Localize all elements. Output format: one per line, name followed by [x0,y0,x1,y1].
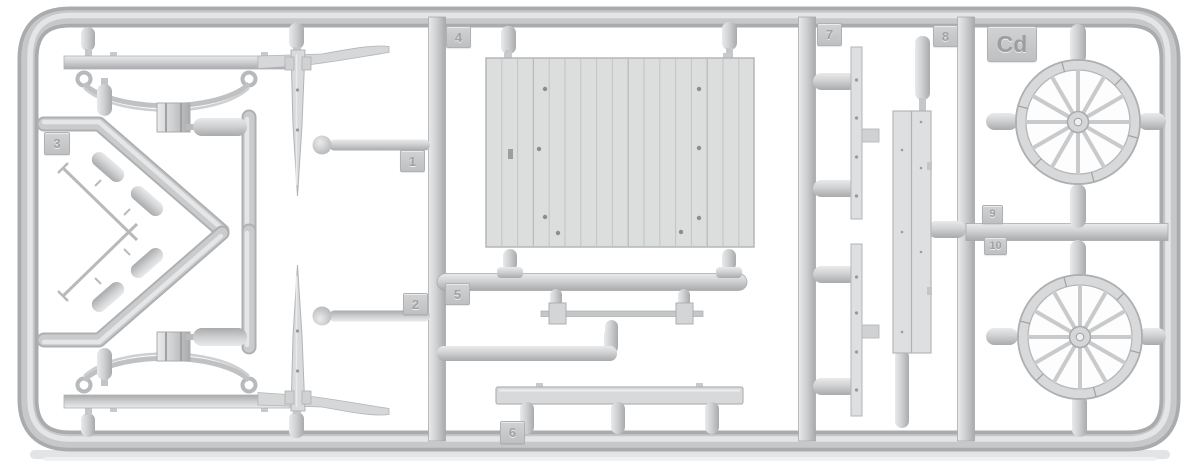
sprue-photo: 3 1 2 4 5 6 7 8 9 10 Cd [0,0,1200,465]
rail-2 [799,17,816,441]
tie-rod-part [541,289,703,324]
axle-tube-part [437,320,618,361]
part-tag-4: 4 [446,26,471,48]
ladder-strip-parts [813,47,879,416]
sprue-graphic [0,0,1200,465]
rail-middle [437,274,747,291]
part-tag-6: 6 [500,421,525,444]
part-tag-10: 10 [984,237,1007,255]
part-tag-3: 3 [44,132,70,155]
part-tag-9: 9 [982,205,1003,224]
wheel-part-lower [1018,275,1142,399]
shaft-pole-part-2 [258,265,430,438]
wheel-part-upper [1016,60,1140,184]
long-plank-part [893,36,966,428]
part-tag-8: 8 [933,25,958,47]
side-beam-part [496,383,743,434]
part-tag-5: 5 [445,283,470,305]
rail-1 [429,17,446,441]
sprue-shadow-soft [44,457,1156,461]
sprue-code-tag: Cd [987,26,1037,62]
part-tag-7: 7 [817,23,842,46]
wheel-section [966,24,1168,437]
floor-panel-part [486,22,754,278]
part-tag-2: 2 [403,293,428,315]
undercarriage-frame-part [44,27,290,437]
part-tag-1: 1 [400,150,425,172]
